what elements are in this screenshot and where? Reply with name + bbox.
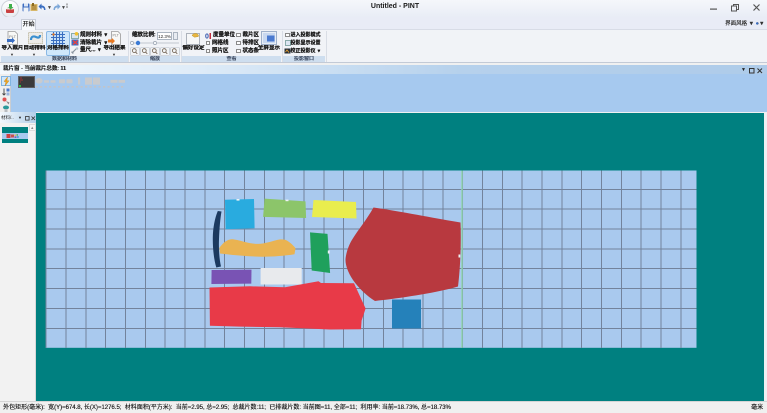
svg-text:0: 0 [205,33,209,40]
svg-text:PLT: PLT [9,34,17,39]
svg-text:PLT: PLT [113,34,120,38]
